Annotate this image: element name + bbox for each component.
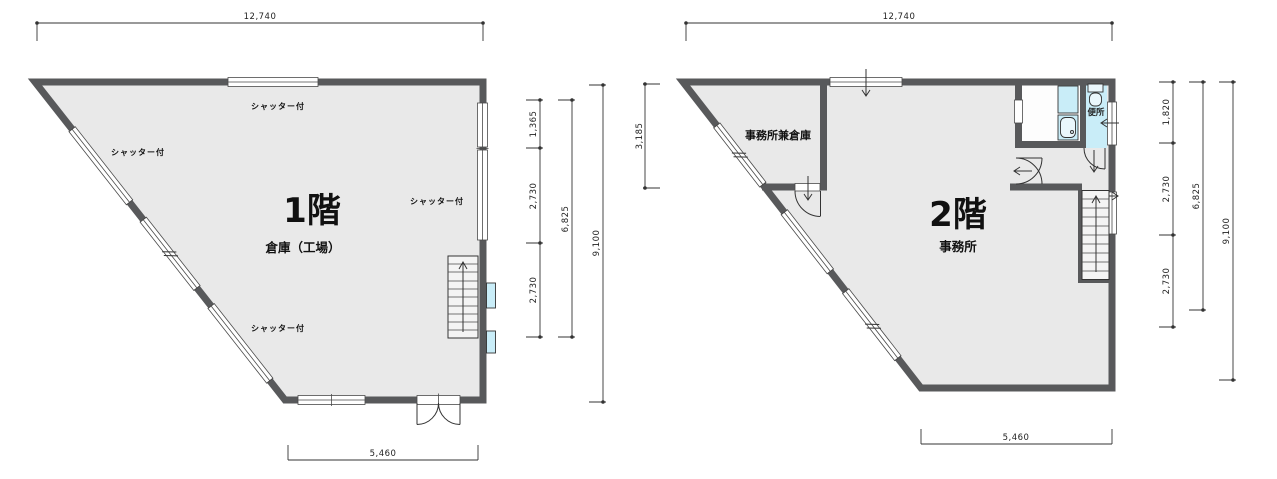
floorplan-page: 1階 倉庫（工場） シャッター付 シャッター付 シャッター付 シャッター付 12… — [0, 0, 1277, 479]
floor1-dim-seg3: 2,730 — [529, 277, 539, 304]
floor2-toilet-label: 便所 — [1087, 107, 1105, 118]
floor2-stairs-left-wall — [1078, 191, 1082, 283]
floor2-partition-toilet-left — [1080, 86, 1086, 149]
washroom-cabinet — [1058, 86, 1078, 113]
floor1-dim-seg1: 1,365 — [529, 111, 539, 138]
floor2-partition-storage-bottom — [762, 184, 795, 191]
floor2-partition-wash-bottom — [1015, 141, 1086, 148]
floor2-title: 2階 — [929, 195, 987, 235]
floor1-outline — [35, 82, 483, 400]
floor1-right-windows — [477, 103, 489, 240]
floor2-dim-bottom: 5,460 — [1003, 433, 1030, 443]
floor1-shutter-label-left: シャッター付 — [111, 147, 165, 157]
floor2-dim-top: 12,740 — [883, 12, 916, 22]
floor1-use-label: 倉庫（工場） — [264, 240, 340, 255]
floor2-dim-seg2: 2,730 — [1162, 176, 1172, 203]
floor1-wall-unit-1 — [487, 283, 496, 308]
floor1-dim-bottom: 5,460 — [370, 449, 397, 459]
floor2-dim-seg3: 2,730 — [1162, 268, 1172, 295]
floor1-bottom-window — [298, 394, 365, 406]
floor2-dim-left: 3,185 — [635, 123, 645, 150]
floor2-use-label: 事務所 — [939, 239, 977, 254]
floor2-partition-storage-right — [820, 86, 827, 191]
floor1-title: 1階 — [283, 191, 341, 231]
floor1-shutter-label-bottom: シャッター付 — [251, 323, 305, 333]
floor1-shutter-label-top: シャッター付 — [251, 101, 305, 111]
floor2-plan: 2階 事務所 事務所兼倉庫 便所 12,740 5,460 3,185 — [635, 12, 1236, 444]
floor1-dim-seg2: 2,730 — [529, 183, 539, 210]
wash-basin — [1058, 115, 1078, 140]
floor2-partition-wash-left-a — [1015, 86, 1022, 101]
floor1-dim-total: 9,100 — [592, 230, 602, 257]
floor1-dim-sub: 6,825 — [561, 206, 571, 233]
floor2-dim-sub: 6,825 — [1192, 183, 1202, 210]
floor1-wall-unit-2 — [487, 331, 496, 353]
floor1-top-shutter-opening — [228, 78, 318, 87]
floor2-washroom-opening — [1015, 100, 1023, 123]
toilet-fixture — [1088, 84, 1103, 106]
floor2-dim-seg1: 1,820 — [1162, 99, 1172, 126]
floor1-shutter-label-right: シャッター付 — [410, 196, 464, 206]
floor1-dim-top: 12,740 — [244, 12, 277, 22]
floor2-stairs — [1082, 191, 1109, 280]
floor1-stairs — [448, 256, 478, 338]
floor2-partition-hall-stairs — [1010, 184, 1082, 191]
floor2-dim-total: 9,100 — [1222, 218, 1232, 245]
floor1-double-door — [417, 394, 460, 425]
floorplan-canvas: 1階 倉庫（工場） シャッター付 シャッター付 シャッター付 シャッター付 12… — [0, 0, 1277, 479]
floor1-plan: 1階 倉庫（工場） シャッター付 シャッター付 シャッター付 シャッター付 12… — [35, 12, 606, 460]
floor2-storage-office-label: 事務所兼倉庫 — [745, 128, 811, 142]
